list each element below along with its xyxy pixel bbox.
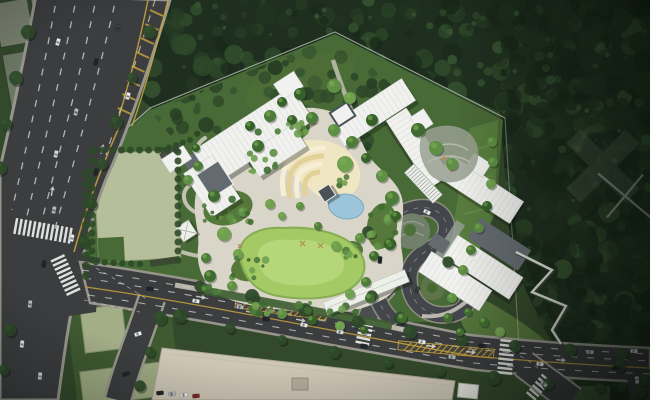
- site-plan-rendering: [0, 0, 650, 400]
- vignette-overlay: [0, 0, 650, 400]
- aerial-view-canvas: [0, 0, 650, 400]
